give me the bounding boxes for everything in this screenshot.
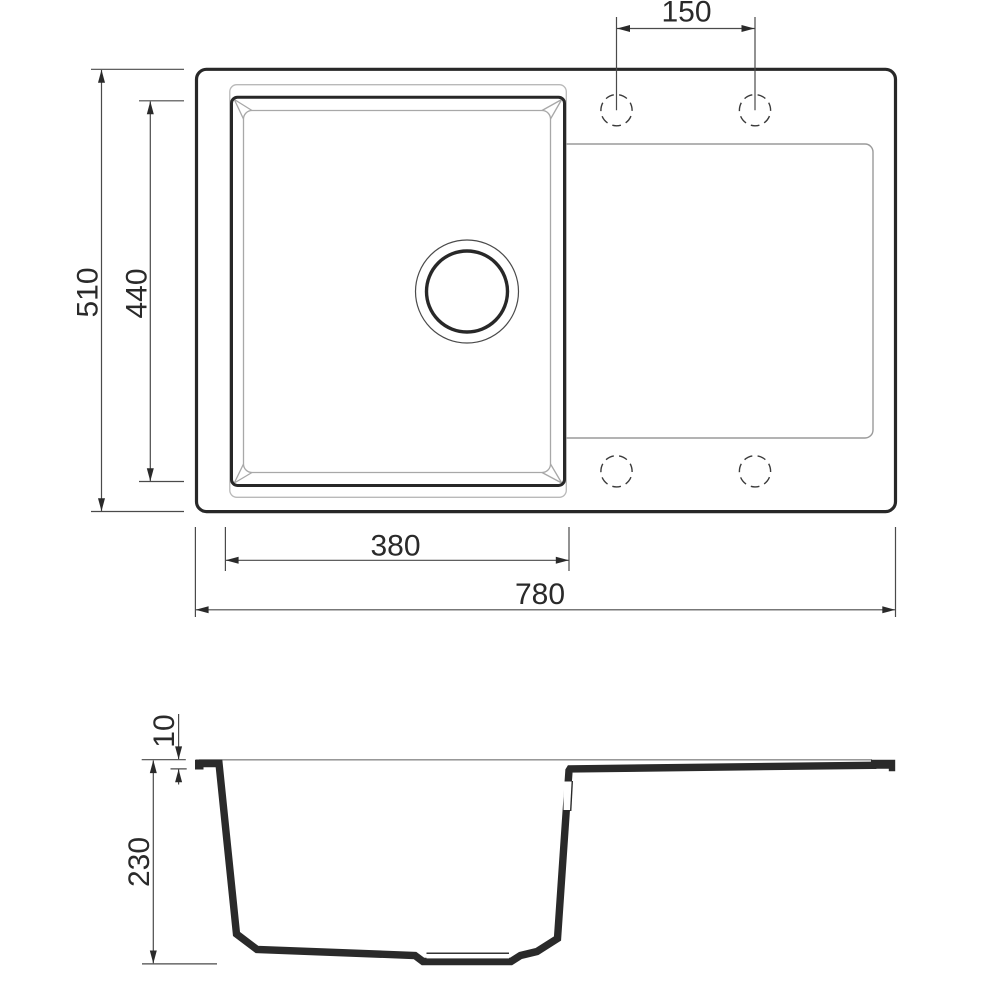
svg-text:10: 10 — [148, 714, 181, 747]
svg-text:230: 230 — [123, 837, 156, 887]
svg-text:440: 440 — [120, 268, 153, 318]
svg-text:380: 380 — [370, 530, 420, 563]
svg-text:510: 510 — [72, 267, 105, 317]
svg-text:780: 780 — [515, 578, 565, 611]
svg-text:150: 150 — [661, 0, 711, 29]
